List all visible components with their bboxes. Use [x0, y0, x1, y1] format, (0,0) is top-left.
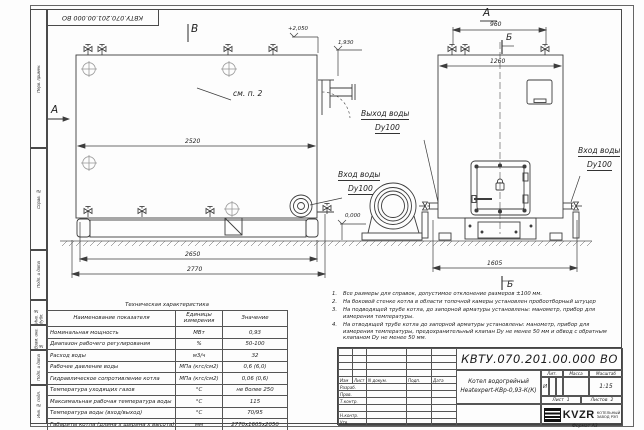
- company-line2: ЗАВОД РЭП: [597, 415, 621, 419]
- see-note-label: см. п. 2: [233, 90, 262, 98]
- rev-cell: [432, 356, 457, 363]
- note-item: 1.Все размеры для справок, допустимое от…: [332, 291, 620, 298]
- spec-cell: °С: [176, 396, 223, 408]
- rev-cell: [407, 391, 432, 398]
- role-label: [339, 405, 367, 412]
- rev-cell: [432, 419, 457, 426]
- spec-cell: мм: [176, 419, 223, 430]
- note-number: 3.: [332, 307, 343, 320]
- scale-value-cell: 1:15: [589, 377, 623, 396]
- section-label-a-side: А: [51, 105, 58, 116]
- inlet-left-label-line1: Вход воды: [338, 171, 380, 181]
- front-dimensions: [433, 21, 580, 290]
- spec-cell: 115: [223, 396, 288, 408]
- spec-row: Гидравлическое сопротивление котлаМПа (к…: [48, 373, 288, 385]
- note-number: 1.: [332, 291, 343, 298]
- rev-cell: [407, 398, 432, 405]
- note-text: На боковой стенке котла в области топочн…: [343, 299, 596, 306]
- spec-row: Температура воды (вход/выход)°С70/95: [48, 407, 288, 419]
- section-label-b-bottom: Б: [507, 281, 513, 290]
- spec-cell: 2770х1605х2050: [223, 419, 288, 430]
- rev-cell: [407, 370, 432, 377]
- section-label-b-top: Б: [506, 34, 512, 43]
- role-row: Утв.: [339, 419, 457, 426]
- rev-cell: [407, 419, 432, 426]
- spec-header: Единицы измерения: [176, 311, 223, 327]
- spec-cell: Гидравлическое сопротивление котла: [48, 373, 176, 385]
- ground-line: [60, 241, 592, 246]
- elevation-outlet: 1,930: [338, 41, 353, 46]
- rev-cell: [432, 363, 457, 370]
- dim-1260: 1260: [490, 59, 505, 65]
- sheets-value: 2: [610, 398, 613, 403]
- rev-cell: [407, 356, 432, 363]
- rev-cell: [367, 398, 407, 405]
- spec-cell: не более 250: [223, 384, 288, 396]
- rev-header: Дата: [432, 377, 457, 384]
- rev-row: [339, 363, 457, 370]
- rev-cell: [407, 384, 432, 391]
- rev-cell: [367, 370, 407, 377]
- rev-cell: [432, 405, 457, 412]
- spec-cell: 0,93: [223, 327, 288, 339]
- rev-header-row: Изм Лист N докум. Подп. Дата: [339, 377, 457, 384]
- rev-cell: [432, 398, 457, 405]
- rev-cell: [367, 419, 407, 426]
- spec-row: Габариты котла (длина х ширина х высота)…: [48, 419, 288, 430]
- note-number: 4.: [332, 322, 343, 342]
- lit-value-cell: И: [541, 377, 549, 396]
- kvzr-logo-icon: [544, 408, 561, 422]
- note-item: 3.На подводящей трубе котла, до запорной…: [332, 307, 620, 320]
- sheet-cell: Лист 1: [541, 396, 581, 404]
- spec-cell: 50-100: [223, 338, 288, 350]
- spec-cell: Температура уходящих газов: [48, 384, 176, 396]
- role-row: Н.контр.: [339, 412, 457, 419]
- rev-row: [339, 349, 457, 356]
- dim-2650: 2650: [185, 252, 200, 258]
- rev-header: N докум.: [367, 377, 407, 384]
- doc-number: КВТУ.070.201.00.000 ВО: [461, 352, 618, 366]
- note-text: Все размеры для справок, допустимое откл…: [343, 291, 542, 298]
- role-row: Разраб.: [339, 384, 457, 391]
- note-text: На отводящей трубе котла до запорной арм…: [343, 322, 620, 342]
- company-cell: KVZR КОТЕЛЬНЫЙ ЗАВОД РЭП: [541, 404, 623, 426]
- rev-cell: [432, 412, 457, 419]
- view-label-b: В: [191, 24, 198, 35]
- spec-cell: 0,6 (6,0): [223, 361, 288, 373]
- inlet-left-label-line2: Dy100: [348, 185, 373, 195]
- spec-table-title: Техническая характеристика: [47, 303, 287, 308]
- rev-cell: [432, 384, 457, 391]
- doc-name-line2: Heatexpert-КВр-0,93-К(К): [460, 387, 536, 396]
- spec-row: Диапазон рабочего регулирования%50-100: [48, 338, 288, 350]
- spec-header: Значение: [223, 311, 288, 327]
- spec-cell: Максимальная рабочая температура воды: [48, 396, 176, 408]
- dim-960: 960: [490, 22, 501, 28]
- spec-table-section: Техническая характеристика Наименование …: [47, 303, 287, 430]
- role-label: Утв.: [339, 419, 367, 426]
- spec-cell: °С: [176, 407, 223, 419]
- rev-cell: [339, 356, 353, 363]
- view-label-a-front: А: [483, 8, 490, 19]
- rev-cell: [367, 384, 407, 391]
- spec-cell: м3/ч: [176, 350, 223, 362]
- rev-header: Изм: [339, 377, 353, 384]
- lit-header-cell: Лит.: [541, 370, 563, 377]
- spec-cell: Габариты котла (длина х ширина х высота): [48, 419, 176, 430]
- spec-cell: 32: [223, 350, 288, 362]
- doc-number-cell: КВТУ.070.201.00.000 ВО: [456, 348, 623, 370]
- doc-name-cell: Котел водогрейный Heatexpert-КВр-0,93-К(…: [456, 370, 541, 404]
- sheet-value: 1: [567, 398, 570, 403]
- spec-cell: °С: [176, 384, 223, 396]
- spec-cell: МПа (кгс/см2): [176, 373, 223, 385]
- role-row: [339, 405, 457, 412]
- spec-cell: Диапазон рабочего регулирования: [48, 338, 176, 350]
- mass-value-cell: [563, 377, 589, 396]
- rev-cell: [353, 356, 367, 363]
- spec-cell: Номинальная мощность: [48, 327, 176, 339]
- rev-cell: [367, 405, 407, 412]
- spec-header: Наименование показателя: [48, 311, 176, 327]
- title-block: Изм Лист N докум. Подп. Дата Разраб. Про…: [337, 347, 622, 425]
- spec-row: Рабочее давление водыМПа (кгс/см2)0,6 (6…: [48, 361, 288, 373]
- sheet-label: Лист: [552, 398, 563, 403]
- note-text: На подводящей трубе котла, до запорной а…: [343, 307, 620, 320]
- inlet-right-label-line2: Dy100: [587, 161, 612, 171]
- rev-row: [339, 356, 457, 363]
- outlet-label-line1: Выход воды: [361, 110, 409, 120]
- rev-cell: [367, 356, 407, 363]
- rev-cell: [432, 370, 457, 377]
- dim-1605: 1605: [487, 261, 502, 267]
- rev-cell: [353, 370, 367, 377]
- rev-cell: [367, 391, 407, 398]
- rev-cell: [339, 349, 353, 356]
- rev-header: Лист: [353, 377, 367, 384]
- role-label: Н.контр.: [339, 412, 367, 419]
- spec-cell: 0,06 (0,6): [223, 373, 288, 385]
- rev-cell: [407, 405, 432, 412]
- bottom-empty-cell: [456, 404, 541, 426]
- rev-cell: [353, 349, 367, 356]
- revision-table: Изм Лист N докум. Подп. Дата Разраб. Про…: [338, 348, 457, 426]
- dim-2520: 2520: [185, 139, 200, 145]
- lit-empty-cell: [549, 377, 556, 396]
- spec-cell: Расход воды: [48, 350, 176, 362]
- spec-cell: Рабочее давление воды: [48, 361, 176, 373]
- rev-cell: [432, 349, 457, 356]
- role-row: Пров.: [339, 391, 457, 398]
- rev-row: [339, 370, 457, 377]
- note-item: 2.На боковой стенке котла в области топо…: [332, 299, 620, 306]
- role-label: Т.контр.: [339, 398, 367, 405]
- rev-cell: [432, 391, 457, 398]
- spec-cell: МПа (кгс/см2): [176, 361, 223, 373]
- spec-header-row: Наименование показателя Единицы измерени…: [48, 311, 288, 327]
- outlet-label-line2: Dy100: [375, 124, 400, 134]
- spec-cell: МВт: [176, 327, 223, 339]
- spec-cell: Температура воды (вход/выход): [48, 407, 176, 419]
- spec-cell: %: [176, 338, 223, 350]
- note-number: 2.: [332, 299, 343, 306]
- elevation-top: +2,050: [288, 27, 308, 32]
- spec-cell: 70/95: [223, 407, 288, 419]
- role-label: Разраб.: [339, 384, 367, 391]
- role-label: Пров.: [339, 391, 367, 398]
- rev-cell: [339, 363, 353, 370]
- rev-header: Подп.: [407, 377, 432, 384]
- rev-cell: [407, 349, 432, 356]
- doc-name-line1: Котел водогрейный: [468, 378, 529, 387]
- logo-text: KVZR: [563, 409, 595, 421]
- elevation-ground: 0,000: [345, 214, 360, 219]
- note-item: 4.На отводящей трубе котла до запорной а…: [332, 322, 620, 342]
- scale-header-cell: Масштаб: [589, 370, 623, 377]
- boiler-front-view: [422, 42, 579, 240]
- dim-2770: 2770: [187, 267, 202, 273]
- role-row: Т.контр.: [339, 398, 457, 405]
- sheets-cell: Листов 2: [581, 396, 623, 404]
- rev-cell: [367, 363, 407, 370]
- rev-cell: [353, 363, 367, 370]
- rev-cell: [367, 349, 407, 356]
- spec-row: Расход водым3/ч32: [48, 350, 288, 362]
- format-label: Формат А3: [572, 425, 598, 430]
- spec-row: Температура уходящих газов°Сне более 250: [48, 384, 288, 396]
- spec-row: Номинальная мощностьМВт0,93: [48, 327, 288, 339]
- drawing-sheet: Перв. примен. Справ. № Подп. и дата Инв.…: [0, 0, 644, 430]
- notes-section: 1.Все размеры для справок, допустимое от…: [332, 291, 620, 343]
- mass-header-cell: Масса: [563, 370, 589, 377]
- inlet-right-label-line1: Вход воды: [578, 147, 620, 157]
- rev-cell: [407, 412, 432, 419]
- rev-cell: [339, 370, 353, 377]
- sheets-label: Листов: [591, 398, 608, 403]
- rev-cell: [367, 412, 407, 419]
- spec-row: Максимальная рабочая температура воды°С1…: [48, 396, 288, 408]
- rev-cell: [407, 363, 432, 370]
- spec-table: Наименование показателя Единицы измерени…: [47, 310, 288, 430]
- lit-empty-cell: [556, 377, 563, 396]
